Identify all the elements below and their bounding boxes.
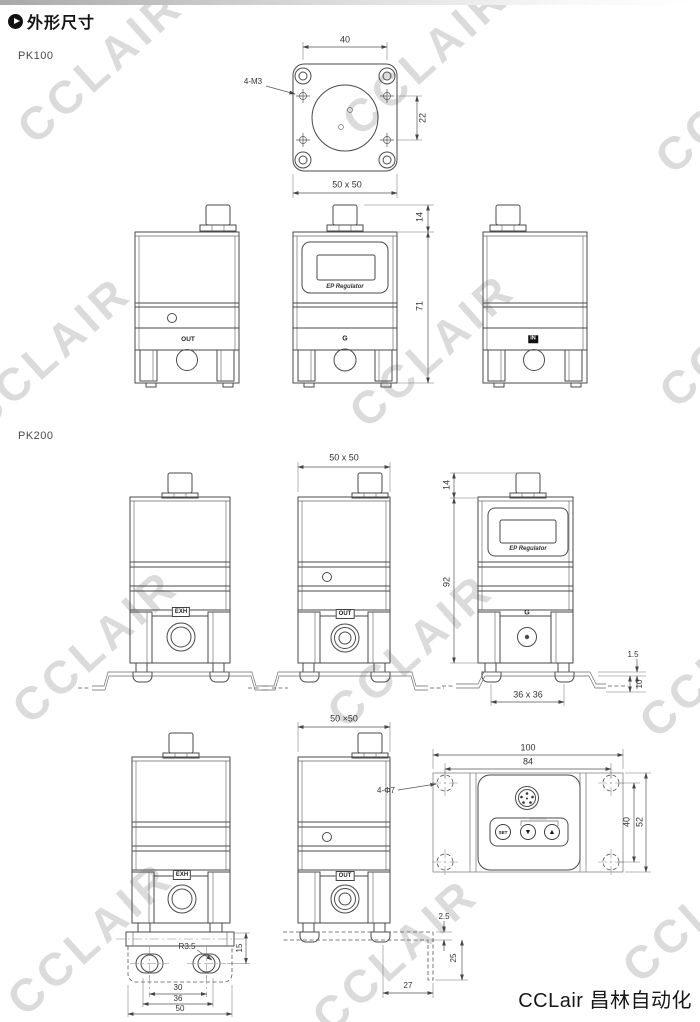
dim-slot-spacing: 30 (174, 984, 183, 992)
dim-panel-height: 52 (636, 817, 645, 827)
port-label-g: G (342, 336, 347, 343)
port-label-exh-r1: EXH (172, 607, 190, 617)
display-text: EP Regulator (326, 284, 363, 290)
dim-footprint-label: 50 x 50 (332, 181, 362, 190)
port-label-g-r1: G (524, 610, 529, 617)
display-text-r1: EP Regulator (509, 546, 546, 552)
port-label-exh-r2: EXH (173, 870, 191, 880)
dim-body-height-r1: 92 (443, 577, 452, 587)
dim-slot-radius: R3.5 (179, 943, 196, 951)
dim-footprint-r2: 50 ×50 (330, 715, 358, 724)
dim-panel-width: 100 (520, 744, 535, 753)
dim-bracket-leg: 25 (450, 954, 458, 963)
dim-bracket-thickness-r2: 2.5 (438, 913, 449, 921)
dim-panel-hole-spacing-h: 84 (523, 758, 533, 767)
page-title: 外形尺寸 (27, 9, 95, 33)
dim-foot-span-r1: 36 x 36 (513, 691, 543, 700)
dim-slot-offset: 15 (236, 944, 244, 953)
port-label-out-r1: OUT (336, 609, 355, 619)
dim-slot-outer: 36 (174, 995, 183, 1003)
dim-plate-width: 50 (176, 1005, 185, 1013)
dim-body-height-label: 71 (416, 301, 425, 311)
set-button: SET (495, 824, 511, 840)
dim-width-label: 40 (340, 36, 350, 45)
model-label-pk200: PK200 (18, 430, 54, 442)
dim-bracket-thickness-r1: 1.5 (627, 651, 638, 659)
dim-bracket-height-r1: 10 (636, 680, 644, 689)
page-header: 外形尺寸 (8, 9, 95, 33)
port-label-out: OUT (181, 337, 195, 344)
drawing-page: CCLAIR CCLAIR CCLAIR CCLAIR CCLAIR CCLAI… (0, 0, 700, 1022)
dim-connector-height-r1: 14 (443, 480, 452, 490)
up-arrow-button: ▲ (544, 824, 560, 840)
model-label-pk100: PK100 (18, 50, 54, 62)
down-arrow-button: ▼ (520, 824, 536, 840)
dim-footprint-r1: 50 x 50 (329, 454, 359, 463)
dim-connector-height-label: 14 (416, 212, 425, 222)
dim-holes-label: 4-M3 (244, 78, 262, 86)
port-label-in: IN (528, 335, 538, 343)
dim-hole-spacing-label: 22 (419, 113, 428, 123)
dimension-labels: 40 22 4-M3 50 x 50 OUT EP Regulator G IN… (0, 0, 700, 1022)
port-label-out-r2: OUT (336, 871, 355, 881)
dim-panel-holes: 4-Φ7 (377, 787, 395, 795)
dim-bracket-offset: 27 (404, 982, 413, 990)
brand-logo: CCLair 昌林自动化 (518, 984, 692, 1013)
play-icon (8, 14, 23, 29)
top-gradient-bar (0, 0, 700, 5)
dim-panel-hole-spacing-v: 40 (623, 817, 632, 827)
